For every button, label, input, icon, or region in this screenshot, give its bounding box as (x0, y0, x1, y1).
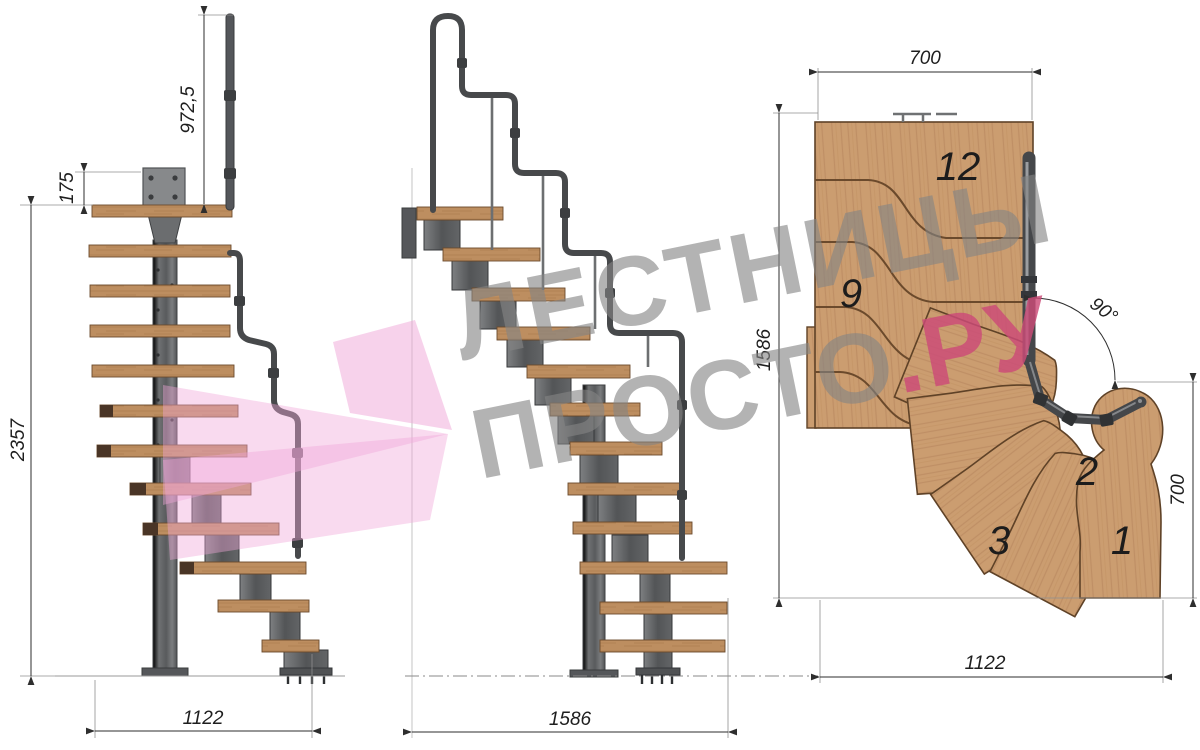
dim-total-height: 2357 (8, 417, 29, 462)
staircase-technical-drawing: 2357 175 972,5 1122 (0, 0, 1200, 750)
dim-side-length: 1586 (549, 709, 592, 730)
plan-dim-bottom-width: 1122 (820, 653, 1163, 677)
side-wall-bracket (402, 208, 416, 258)
dim-front-width: 1122 (183, 708, 224, 729)
dim-turn-angle: 90° (1086, 294, 1122, 328)
dim-plate: 175 (57, 172, 78, 204)
front-dim-plate: 175 (57, 172, 84, 205)
step-label-3: 3 (988, 519, 1010, 563)
front-elevation-view: 2357 175 972,5 1122 (8, 14, 345, 738)
step-label-1: 1 (1111, 519, 1133, 563)
dim-rail-height: 972,5 (178, 86, 199, 134)
front-dim-total-height: 2357 (8, 205, 31, 676)
plan-dim-top-width: 700 (818, 48, 1032, 72)
front-mount-plate (143, 168, 185, 206)
side-dim-length: 1586 (412, 709, 728, 732)
dim-plan-right-depth: 700 (1168, 474, 1189, 506)
dim-plan-top-width: 700 (909, 48, 941, 69)
plan-plate-marks (893, 114, 957, 122)
front-dim-width: 1122 (95, 708, 312, 731)
dim-plan-bottom-width: 1122 (965, 653, 1006, 674)
plan-dim-right-depth: 700 (1168, 382, 1193, 598)
step-label-2: 2 (1075, 450, 1098, 494)
watermark-arrow-icon (163, 320, 452, 560)
